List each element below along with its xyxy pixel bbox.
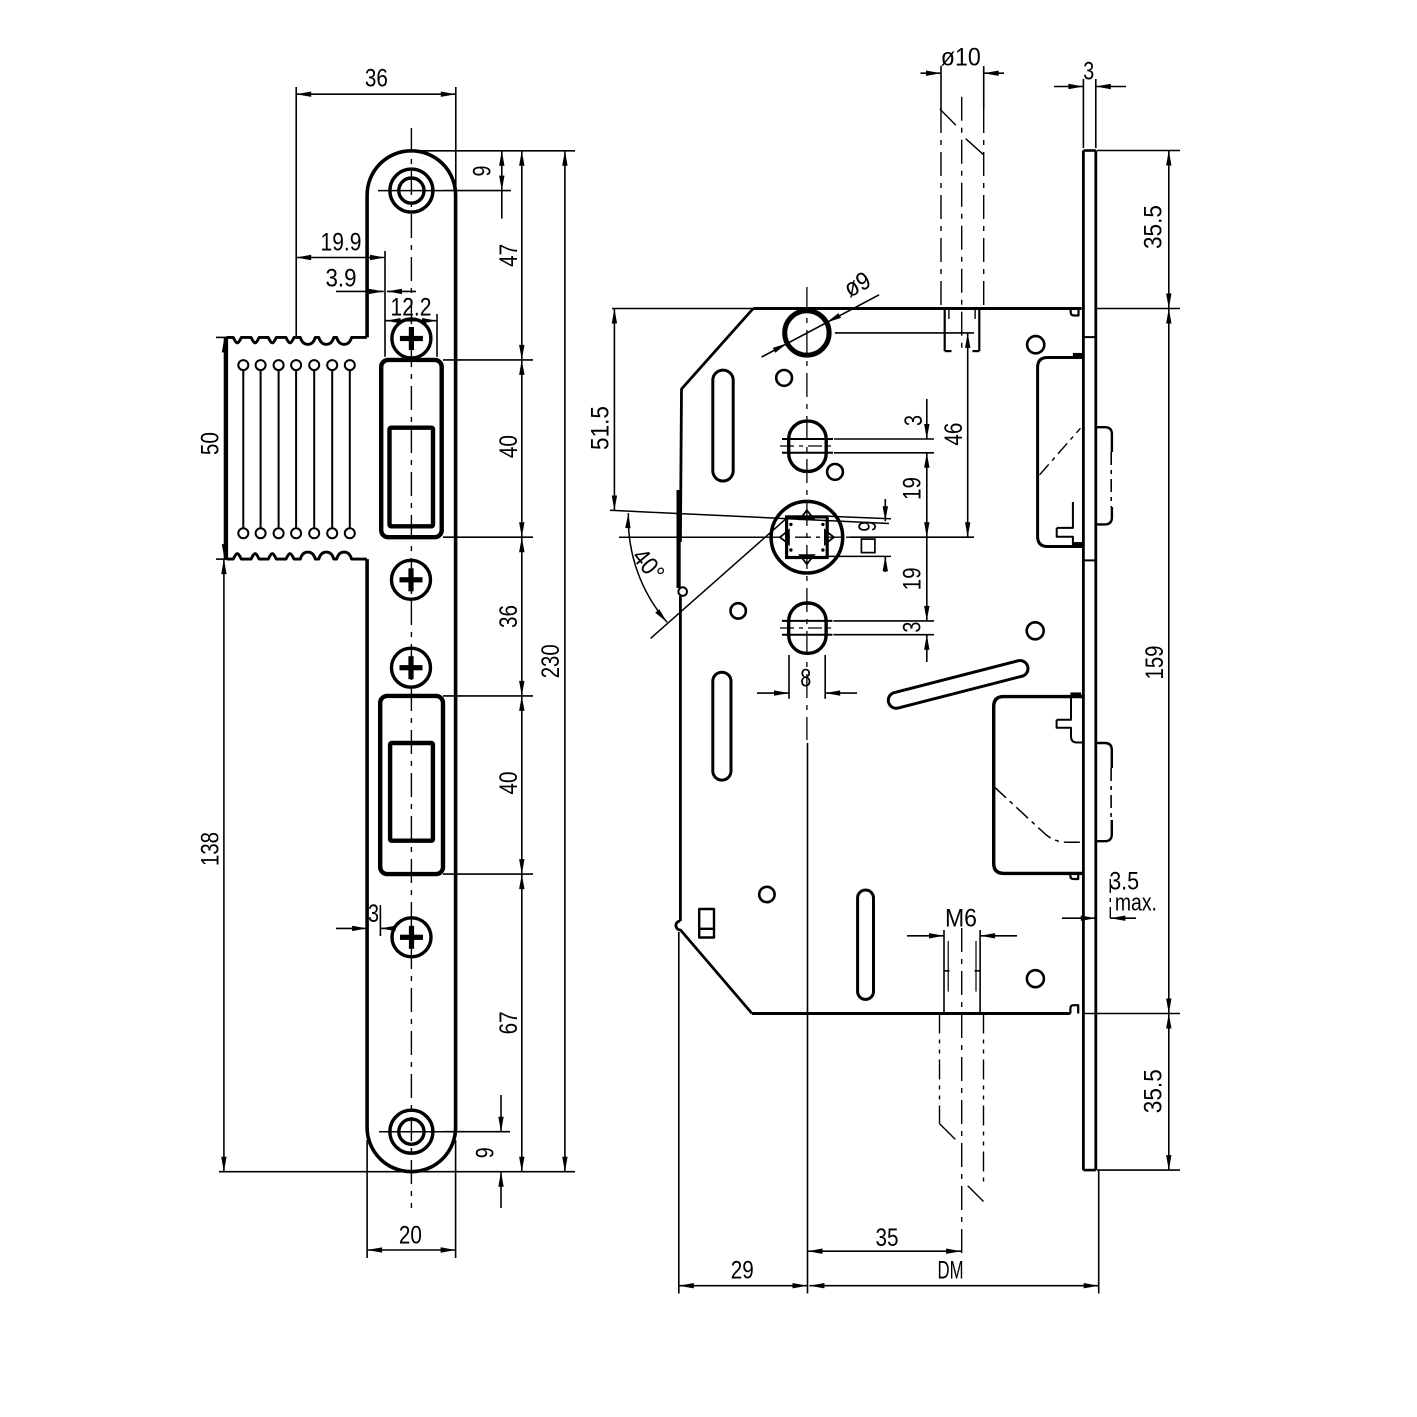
svg-text:DM: DM <box>938 1257 964 1285</box>
svg-text:12.2: 12.2 <box>391 294 432 322</box>
svg-text:51.5: 51.5 <box>587 406 615 450</box>
svg-text:20: 20 <box>399 1222 422 1250</box>
svg-text:9: 9 <box>469 166 497 177</box>
svg-text:47: 47 <box>495 244 523 267</box>
svg-text:40: 40 <box>495 772 523 795</box>
svg-text:3.9: 3.9 <box>326 265 357 293</box>
svg-text:3: 3 <box>900 415 928 426</box>
svg-text:29: 29 <box>731 1257 754 1285</box>
svg-text:3: 3 <box>368 900 379 928</box>
svg-text:3: 3 <box>1083 58 1094 86</box>
svg-text:138: 138 <box>197 832 225 866</box>
svg-text:46: 46 <box>940 423 968 446</box>
svg-text:40: 40 <box>495 435 523 458</box>
svg-text:9: 9 <box>854 521 882 532</box>
svg-text:19: 19 <box>899 567 927 590</box>
svg-text:ø10: ø10 <box>941 44 981 72</box>
svg-text:8: 8 <box>800 665 811 693</box>
svg-text:35.5: 35.5 <box>1140 205 1168 249</box>
svg-text:max.: max. <box>1115 889 1157 916</box>
svg-text:50: 50 <box>197 432 225 455</box>
svg-text:19: 19 <box>899 477 927 500</box>
svg-text:35.5: 35.5 <box>1140 1069 1168 1113</box>
svg-text:36: 36 <box>365 65 388 93</box>
svg-text:19.9: 19.9 <box>321 229 362 257</box>
svg-text:230: 230 <box>537 644 565 678</box>
svg-text:9: 9 <box>472 1147 500 1158</box>
svg-text:35: 35 <box>876 1224 899 1252</box>
svg-text:36: 36 <box>495 605 523 628</box>
svg-text:3: 3 <box>899 622 927 633</box>
svg-text:67: 67 <box>495 1011 523 1034</box>
svg-text:159: 159 <box>1141 646 1169 680</box>
